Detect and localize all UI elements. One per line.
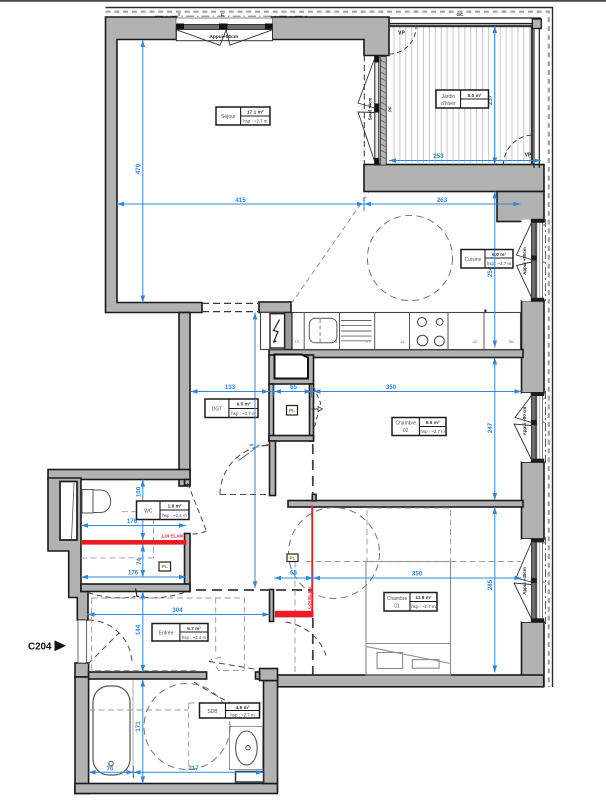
svg-text:DGT: DGT xyxy=(212,406,223,412)
svg-text:hsp : ~2.7 m: hsp : ~2.7 m xyxy=(243,119,268,124)
svg-text:Appui +80cm: Appui +80cm xyxy=(522,247,527,275)
svg-text:100: 100 xyxy=(135,486,142,497)
svg-text:350: 350 xyxy=(412,571,423,578)
svg-text:470: 470 xyxy=(135,163,142,174)
svg-text:02: 02 xyxy=(403,428,409,434)
svg-text:LV: LV xyxy=(365,339,370,344)
svg-text:4.9 m²: 4.9 m² xyxy=(236,705,250,711)
svg-text:PL: PL xyxy=(162,564,168,569)
svg-text:SDB: SDB xyxy=(207,709,218,715)
svg-text:BU: BU xyxy=(332,339,338,344)
svg-text:VP: VP xyxy=(398,31,405,37)
svg-text:VP: VP xyxy=(525,153,532,159)
svg-text:hsp : ~2.7 m: hsp : ~2.7 m xyxy=(411,604,436,609)
svg-text:263: 263 xyxy=(437,197,448,204)
svg-text:76: 76 xyxy=(107,765,114,772)
svg-text:3T: 3T xyxy=(472,339,477,344)
svg-text:01: 01 xyxy=(394,604,400,610)
svg-text:WC: WC xyxy=(144,508,153,514)
svg-text:Seuil +4cm: Seuil +4cm xyxy=(367,98,372,121)
svg-text:GC: GC xyxy=(457,12,465,17)
svg-text:217: 217 xyxy=(188,765,199,772)
svg-text:LOI ELAN: LOI ELAN xyxy=(162,534,184,539)
svg-text:1.8 m²: 1.8 m² xyxy=(168,504,182,510)
svg-text:hsp : ~2.7 m: hsp : ~2.7 m xyxy=(230,713,255,718)
svg-text:hsp : ~2.4 m: hsp : ~2.4 m xyxy=(162,513,187,518)
svg-text:S: S xyxy=(541,541,546,544)
svg-text:5.7 m²: 5.7 m² xyxy=(187,626,201,632)
svg-text:Séjour: Séjour xyxy=(221,114,236,120)
svg-text:C204: C204 xyxy=(28,642,52,653)
svg-text:9.9 m²: 9.9 m² xyxy=(426,420,440,426)
svg-text:176: 176 xyxy=(128,570,139,577)
svg-text:5.0 m²: 5.0 m² xyxy=(468,93,482,99)
svg-text:Chambre: Chambre xyxy=(387,596,408,602)
svg-text:304: 304 xyxy=(172,607,183,614)
svg-text:Cuisine: Cuisine xyxy=(465,257,482,263)
svg-text:S: S xyxy=(541,397,546,400)
svg-text:6.5 m²: 6.5 m² xyxy=(237,402,251,408)
svg-text:171: 171 xyxy=(135,721,142,732)
svg-text:d'hiver: d'hiver xyxy=(441,101,456,107)
svg-text:Entrée: Entrée xyxy=(159,630,174,636)
svg-text:144: 144 xyxy=(135,624,142,635)
svg-text:285: 285 xyxy=(487,579,494,590)
svg-text:hsp : ~2.7 m: hsp : ~2.7 m xyxy=(231,411,256,416)
svg-text:hsp : ~2.7 m: hsp : ~2.7 m xyxy=(421,429,446,434)
svg-text:S: S xyxy=(541,223,546,226)
svg-text:3T: 3T xyxy=(294,339,299,344)
svg-text:hsp : ~2.7 m: hsp : ~2.7 m xyxy=(487,261,512,266)
svg-text:74: 74 xyxy=(136,558,143,565)
svg-text:LOI ELAN: LOI ELAN xyxy=(307,587,312,609)
svg-text:TT: TT xyxy=(400,339,405,344)
svg-text:8: 8 xyxy=(250,443,256,446)
svg-text:PF: PF xyxy=(388,106,393,112)
svg-text:Appui +45cm: Appui +45cm xyxy=(522,567,527,595)
svg-text:247: 247 xyxy=(487,422,494,433)
svg-text:hsp : ~2.4 m: hsp : ~2.4 m xyxy=(182,635,207,640)
svg-text:350: 350 xyxy=(386,384,397,391)
svg-text:6.0 m²: 6.0 m² xyxy=(492,252,506,258)
svg-text:PL: PL xyxy=(290,556,296,561)
svg-text:F.: F. xyxy=(221,12,225,17)
svg-text:Jardin: Jardin xyxy=(441,94,455,100)
svg-text:Chambre: Chambre xyxy=(395,420,416,426)
svg-text:RE: RE xyxy=(508,339,514,344)
svg-text:65: 65 xyxy=(290,384,297,391)
svg-text:PL: PL xyxy=(289,408,295,413)
svg-text:S: S xyxy=(177,12,180,17)
svg-text:17.1 m²: 17.1 m² xyxy=(247,110,264,116)
svg-text:65: 65 xyxy=(290,570,297,577)
svg-text:253: 253 xyxy=(433,153,444,160)
svg-text:Appui+80cm: Appui+80cm xyxy=(209,34,238,40)
svg-text:415: 415 xyxy=(235,197,246,204)
svg-text:11.8 m²: 11.8 m² xyxy=(415,595,432,601)
svg-text:Appui +90 cm: Appui +90 cm xyxy=(522,407,527,436)
svg-text:133: 133 xyxy=(225,384,236,391)
